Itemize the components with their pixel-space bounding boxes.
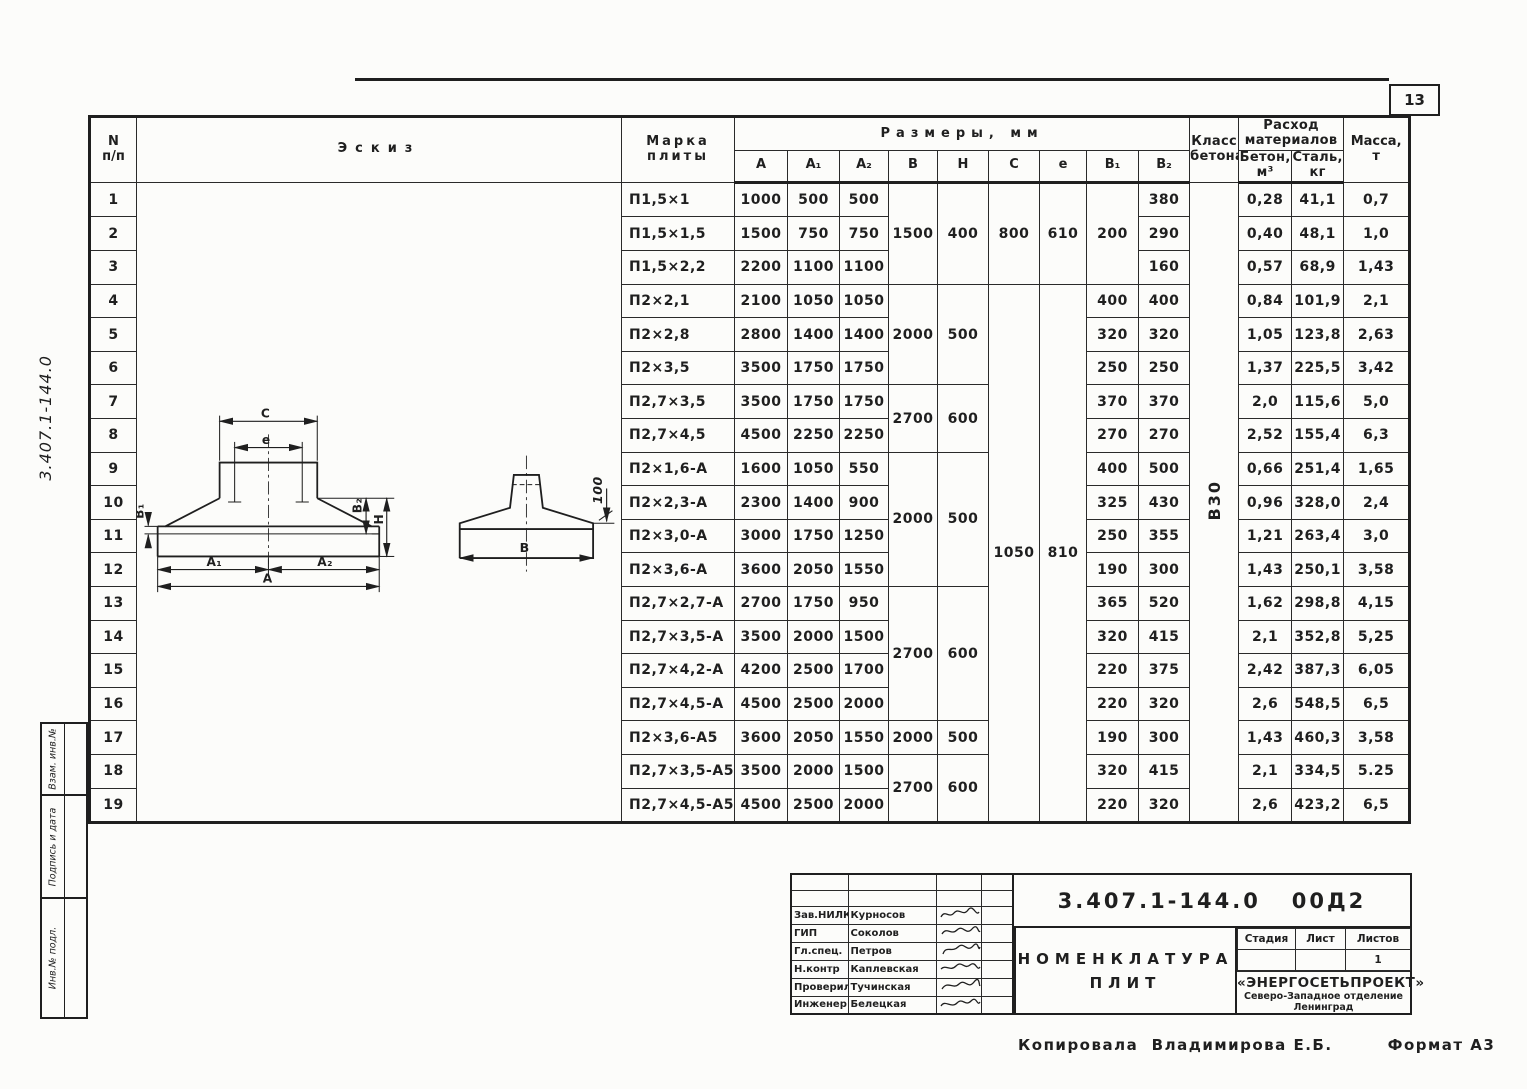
cell-a: 3500 <box>735 351 788 385</box>
stamp-inv: Инв.№ подл. <box>40 897 88 1019</box>
signature-scribble <box>939 925 981 938</box>
sig-date <box>981 942 1013 960</box>
stamp-blank-cell <box>65 899 86 1017</box>
row-num: 11 <box>90 519 137 553</box>
stage-value <box>1238 950 1296 971</box>
cell-a: 2100 <box>735 284 788 318</box>
copied-by: Копировала Владимирова Е.Б. <box>1018 1036 1333 1054</box>
signature-table: Зав.НИЛКЭ Курносов ГИП Соколов Гл.спец. … <box>790 873 1014 1015</box>
row-num: 12 <box>90 553 137 587</box>
sig-empty <box>981 874 1013 890</box>
col-header-mark: Марка плиты <box>622 117 735 183</box>
cell-a: 4500 <box>735 788 788 823</box>
cell-a1: 1400 <box>788 486 840 520</box>
cell-b1: 190 <box>1087 553 1139 587</box>
cell-a2: 750 <box>840 217 889 251</box>
cell-a1: 1750 <box>788 385 840 419</box>
cell-b2: 250 <box>1139 351 1190 385</box>
sketch-side-view: В 100 <box>452 402 621 602</box>
concrete-class: В30 <box>1205 480 1224 520</box>
sig-role: Н.контр <box>791 960 848 978</box>
row-num: 2 <box>90 217 137 251</box>
cell-steel: 225,5 <box>1292 351 1344 385</box>
cell-a1: 1050 <box>788 452 840 486</box>
cell-mass: 3,58 <box>1344 553 1410 587</box>
cell-h: 500 <box>938 721 989 755</box>
page-number-box: 13 <box>1389 84 1440 116</box>
cell-a: 4500 <box>735 687 788 721</box>
cell-a2: 2000 <box>840 788 889 823</box>
cell-steel: 101,9 <box>1292 284 1344 318</box>
cell-a: 3600 <box>735 721 788 755</box>
cell-a1: 1750 <box>788 587 840 621</box>
cell-steel: 68,9 <box>1292 251 1344 285</box>
sheets-total-value: 1 <box>1346 950 1411 971</box>
plate-mark: П2×2,8 <box>622 318 735 352</box>
cell-a1: 2000 <box>788 754 840 788</box>
col-header-a2: А₂ <box>840 151 889 183</box>
sheets-header: Листов <box>1346 929 1411 950</box>
cell-b1: 400 <box>1087 452 1139 486</box>
cell-e: 810 <box>1040 284 1087 823</box>
col-header-a: А <box>735 151 788 183</box>
col-header-c: С <box>989 151 1040 183</box>
cell-a2: 900 <box>840 486 889 520</box>
row-num: 5 <box>90 318 137 352</box>
col-header-num: N п/п <box>90 117 137 183</box>
cell-b1: 220 <box>1087 788 1139 823</box>
cell-a: 2800 <box>735 318 788 352</box>
signature-scribble <box>939 979 981 992</box>
cell-b2: 430 <box>1139 486 1190 520</box>
row-num: 7 <box>90 385 137 419</box>
sig-name: Тучинская <box>848 978 936 996</box>
cell-a2: 1550 <box>840 721 889 755</box>
sig-empty <box>936 874 981 890</box>
sig-autograph <box>936 978 981 996</box>
cell-mass: 6,5 <box>1344 687 1410 721</box>
cell-b1: 325 <box>1087 486 1139 520</box>
cell-beton: 0,40 <box>1239 217 1292 251</box>
cell-a1: 2500 <box>788 687 840 721</box>
margin-doc-number: 3.407.1-144.0 <box>36 355 60 525</box>
cell-a1: 1400 <box>788 318 840 352</box>
plate-mark: П1,5×1 <box>622 182 735 217</box>
row-num: 8 <box>90 419 137 453</box>
cell-steel: 41,1 <box>1292 182 1344 217</box>
cell-b: 2000 <box>889 452 938 586</box>
sig-autograph <box>936 924 981 942</box>
sig-empty <box>848 874 936 890</box>
cell-b1: 250 <box>1087 351 1139 385</box>
organization-branch: Северо-Западное отделение <box>1237 991 1410 1002</box>
stamp-podpis: Подпись и дата <box>40 794 88 897</box>
col-header-materials: Расход материалов <box>1239 117 1344 151</box>
col-header-b: В <box>889 151 938 183</box>
row-num: 6 <box>90 351 137 385</box>
cell-a2: 1500 <box>840 620 889 654</box>
col-header-steel: Сталь, кг <box>1292 151 1344 183</box>
cell-beton: 0,96 <box>1239 486 1292 520</box>
cell-mass: 5,0 <box>1344 385 1410 419</box>
plate-mark: П2,7×4,5 <box>622 419 735 453</box>
col-header-sketch: Эскиз <box>137 117 622 183</box>
plate-mark: П2×3,0-А <box>622 519 735 553</box>
cell-b2: 520 <box>1139 587 1190 621</box>
cell-h: 600 <box>938 385 989 452</box>
sketch-front-view: С е В₁ <box>137 402 400 602</box>
cell-b1: 320 <box>1087 754 1139 788</box>
cell-c: 800 <box>989 182 1040 284</box>
sketch-cell: С е В₁ <box>137 182 622 822</box>
cell-a1: 750 <box>788 217 840 251</box>
organization: «ЭНЕРГОСЕТЬПРОЕКТ» Северо-Западное отдел… <box>1237 971 1410 1013</box>
concrete-class-cell: В30 <box>1190 182 1239 822</box>
sig-autograph <box>936 960 981 978</box>
dim-label-b1: В₁ <box>137 503 147 519</box>
sig-name: Соколов <box>848 924 936 942</box>
cell-a: 1500 <box>735 217 788 251</box>
cell-mass: 0,7 <box>1344 182 1410 217</box>
cell-steel: 251,4 <box>1292 452 1344 486</box>
cell-c: 1050 <box>989 284 1040 823</box>
cell-b2: 355 <box>1139 519 1190 553</box>
sig-empty <box>848 890 936 906</box>
col-header-mass: Масса, т <box>1344 117 1410 183</box>
plate-mark: П2×1,6-А <box>622 452 735 486</box>
cell-a1: 2000 <box>788 620 840 654</box>
cell-beton: 2,1 <box>1239 620 1292 654</box>
cell-a2: 950 <box>840 587 889 621</box>
row-num: 9 <box>90 452 137 486</box>
sig-name: Курносов <box>848 906 936 924</box>
plate-mark: П2,7×3,5-А5 <box>622 754 735 788</box>
cell-beton: 0,84 <box>1239 284 1292 318</box>
cell-a2: 1050 <box>840 284 889 318</box>
cell-h: 400 <box>938 182 989 284</box>
signature-scribble <box>939 907 981 920</box>
plate-mark: П1,5×1,5 <box>622 217 735 251</box>
row-num: 4 <box>90 284 137 318</box>
stage-table: Стадия Лист Листов 1 <box>1237 928 1411 971</box>
margin-stamps: Взам. инв.№ Подпись и дата Инв.№ подл. <box>40 722 88 1019</box>
cell-mass: 5.25 <box>1344 754 1410 788</box>
dim-label-a1: А₁ <box>206 555 222 569</box>
cell-mass: 5,25 <box>1344 620 1410 654</box>
sig-name: Петров <box>848 942 936 960</box>
cell-a1: 1750 <box>788 519 840 553</box>
cell-a: 2300 <box>735 486 788 520</box>
drawing-title-line2: плит <box>1090 974 1162 992</box>
cell-steel: 387,3 <box>1292 654 1344 688</box>
row-num: 13 <box>90 587 137 621</box>
title-block: Зав.НИЛКЭ Курносов ГИП Соколов Гл.спец. … <box>790 873 1410 1015</box>
cell-b2: 300 <box>1139 553 1190 587</box>
cell-h: 500 <box>938 452 989 586</box>
cell-a2: 1400 <box>840 318 889 352</box>
cell-b2: 270 <box>1139 419 1190 453</box>
cell-h: 600 <box>938 587 989 721</box>
cell-a2: 1750 <box>840 351 889 385</box>
col-header-sizes: Размеры, мм <box>735 117 1190 151</box>
cell-a2: 1500 <box>840 754 889 788</box>
cell-b1: 365 <box>1087 587 1139 621</box>
cell-e: 610 <box>1040 182 1087 284</box>
top-frame-line <box>355 78 1389 81</box>
stamp-blank-cell <box>65 724 86 794</box>
cell-a2: 500 <box>840 182 889 217</box>
cell-mass: 2,4 <box>1344 486 1410 520</box>
cell-b2: 320 <box>1139 788 1190 823</box>
dim-label-a: А <box>263 572 273 586</box>
stage-header: Стадия <box>1238 929 1296 950</box>
cell-steel: 352,8 <box>1292 620 1344 654</box>
dim-label-100: 100 <box>590 476 605 504</box>
signature-scribble <box>939 961 981 974</box>
drawing-sheet: 13 3.407.1-144.0 Взам. инв.№ Подпись и д… <box>0 0 1527 1089</box>
plate-mark: П2,7×2,7-А <box>622 587 735 621</box>
cell-b: 2000 <box>889 284 938 385</box>
sig-date <box>981 978 1013 996</box>
cell-b2: 375 <box>1139 654 1190 688</box>
sig-date <box>981 996 1013 1014</box>
col-header-h: Н <box>938 151 989 183</box>
col-header-b2: В₂ <box>1139 151 1190 183</box>
cell-beton: 1,43 <box>1239 721 1292 755</box>
cell-b1: 270 <box>1087 419 1139 453</box>
cell-a2: 1750 <box>840 385 889 419</box>
cell-a2: 550 <box>840 452 889 486</box>
sig-autograph <box>936 906 981 924</box>
plate-mark: П2×3,6-А5 <box>622 721 735 755</box>
col-header-e: е <box>1040 151 1087 183</box>
sig-role: Зав.НИЛКЭ <box>791 906 848 924</box>
plate-mark: П2,7×4,5-А <box>622 687 735 721</box>
cell-b2: 415 <box>1139 754 1190 788</box>
cell-b2: 320 <box>1139 687 1190 721</box>
dim-label-c: С <box>261 407 270 421</box>
cell-a1: 2050 <box>788 553 840 587</box>
row-num: 17 <box>90 721 137 755</box>
plate-mark: П1,5×2,2 <box>622 251 735 285</box>
cell-steel: 115,6 <box>1292 385 1344 419</box>
dim-label-a2: А₂ <box>317 555 333 569</box>
cell-steel: 460,3 <box>1292 721 1344 755</box>
cell-b1: 370 <box>1087 385 1139 419</box>
cell-b1: 200 <box>1087 182 1139 284</box>
cell-b1: 220 <box>1087 687 1139 721</box>
stamp-label-cell: Инв.№ подл. <box>42 899 65 1017</box>
cell-steel: 328,0 <box>1292 486 1344 520</box>
cell-beton: 2,0 <box>1239 385 1292 419</box>
sig-empty <box>981 890 1013 906</box>
cell-beton: 0,28 <box>1239 182 1292 217</box>
dim-label-h: Н <box>372 514 386 525</box>
page-number: 13 <box>1404 91 1425 109</box>
stage-block: Стадия Лист Листов 1 «ЭНЕРГОСЕТЬПРОЕКТ» … <box>1237 928 1412 1015</box>
cell-b2: 300 <box>1139 721 1190 755</box>
cell-b1: 190 <box>1087 721 1139 755</box>
format-label: Формат А3 <box>1388 1036 1496 1054</box>
drawing-title: Номенклатура плит <box>1014 928 1237 1015</box>
col-header-a1: А₁ <box>788 151 840 183</box>
cell-a1: 500 <box>788 182 840 217</box>
cell-b2: 400 <box>1139 284 1190 318</box>
cell-b1: 400 <box>1087 284 1139 318</box>
cell-a1: 1750 <box>788 351 840 385</box>
stamp-vzam: Взам. инв.№ <box>40 722 88 794</box>
sig-date <box>981 924 1013 942</box>
row-num: 10 <box>90 486 137 520</box>
sig-empty <box>936 890 981 906</box>
sig-date <box>981 960 1013 978</box>
cell-b2: 415 <box>1139 620 1190 654</box>
cell-a1: 2500 <box>788 654 840 688</box>
cell-mass: 4,15 <box>1344 587 1410 621</box>
cell-steel: 263,4 <box>1292 519 1344 553</box>
cell-beton: 0,57 <box>1239 251 1292 285</box>
row-num: 1 <box>90 182 137 217</box>
sig-name: Каплевская <box>848 960 936 978</box>
cell-steel: 123,8 <box>1292 318 1344 352</box>
col-header-beton: Бетон, м³ <box>1239 151 1292 183</box>
cell-a: 2700 <box>735 587 788 621</box>
cell-b2: 380 <box>1139 182 1190 217</box>
cell-beton: 1,43 <box>1239 553 1292 587</box>
cell-a: 3500 <box>735 754 788 788</box>
cell-a: 4500 <box>735 419 788 453</box>
cell-b: 2700 <box>889 385 938 452</box>
row-num: 3 <box>90 251 137 285</box>
cell-a1: 1050 <box>788 284 840 318</box>
sheet-header: Лист <box>1296 929 1346 950</box>
sig-autograph <box>936 942 981 960</box>
cell-a1: 2250 <box>788 419 840 453</box>
row-num: 18 <box>90 754 137 788</box>
cell-b: 2700 <box>889 587 938 721</box>
cell-b1: 320 <box>1087 318 1139 352</box>
nomenclature-table: N п/п Эскиз Марка плиты Размеры, мм Клас… <box>88 115 1411 824</box>
sig-role: Проверил <box>791 978 848 996</box>
cell-a: 1600 <box>735 452 788 486</box>
cell-b1: 220 <box>1087 654 1139 688</box>
document-number: 3.407.1-144.0 00Д2 <box>1014 873 1412 928</box>
sheet-value <box>1296 950 1346 971</box>
cell-mass: 3,0 <box>1344 519 1410 553</box>
cell-mass: 6,05 <box>1344 654 1410 688</box>
cell-a1: 2050 <box>788 721 840 755</box>
cell-mass: 2,63 <box>1344 318 1410 352</box>
signature-scribble <box>939 997 981 1010</box>
col-header-class: Класс бетона <box>1190 117 1239 183</box>
cell-beton: 2,52 <box>1239 419 1292 453</box>
title-block-right: 3.407.1-144.0 00Д2 Номенклатура плит Ста… <box>1014 873 1412 1015</box>
cell-a: 3000 <box>735 519 788 553</box>
cell-b1: 320 <box>1087 620 1139 654</box>
sig-date <box>981 906 1013 924</box>
sig-empty <box>791 890 848 906</box>
cell-h: 600 <box>938 754 989 822</box>
cell-steel: 423,2 <box>1292 788 1344 823</box>
cell-beton: 1,21 <box>1239 519 1292 553</box>
cell-b2: 290 <box>1139 217 1190 251</box>
cell-a2: 1250 <box>840 519 889 553</box>
cell-a1: 1100 <box>788 251 840 285</box>
cell-beton: 1,05 <box>1239 318 1292 352</box>
cell-a: 3500 <box>735 385 788 419</box>
cell-beton: 1,37 <box>1239 351 1292 385</box>
cell-beton: 2,1 <box>1239 754 1292 788</box>
sketch-drawings: С е В₁ <box>137 402 621 602</box>
cell-mass: 1,0 <box>1344 217 1410 251</box>
signature-scribble <box>939 943 981 956</box>
row-num: 16 <box>90 687 137 721</box>
cell-a: 4200 <box>735 654 788 688</box>
stamp-label-cell: Взам. инв.№ <box>42 724 65 794</box>
dim-label-b: В <box>520 540 530 555</box>
plate-mark: П2×3,5 <box>622 351 735 385</box>
cell-a2: 1100 <box>840 251 889 285</box>
cell-a: 1000 <box>735 182 788 217</box>
sig-autograph <box>936 996 981 1014</box>
plate-mark: П2,7×3,5 <box>622 385 735 419</box>
cell-b2: 320 <box>1139 318 1190 352</box>
col-header-b1: В₁ <box>1087 151 1139 183</box>
copied-line: Копировала Владимирова Е.Б. Формат А3 <box>1018 1036 1495 1054</box>
sig-role: Инженер <box>791 996 848 1014</box>
plate-mark: П2,7×4,5-А5 <box>622 788 735 823</box>
plate-mark: П2×2,3-А <box>622 486 735 520</box>
cell-b2: 500 <box>1139 452 1190 486</box>
plate-mark: П2×3,6-А <box>622 553 735 587</box>
cell-beton: 0,66 <box>1239 452 1292 486</box>
title-block-bottom: Номенклатура плит Стадия Лист Листов <box>1014 928 1412 1015</box>
sig-role: ГИП <box>791 924 848 942</box>
cell-b2: 370 <box>1139 385 1190 419</box>
cell-h: 500 <box>938 284 989 385</box>
cell-a2: 1550 <box>840 553 889 587</box>
cell-a: 2200 <box>735 251 788 285</box>
cell-beton: 1,62 <box>1239 587 1292 621</box>
cell-steel: 48,1 <box>1292 217 1344 251</box>
row-num: 19 <box>90 788 137 823</box>
stamp-blank-cell <box>65 796 86 897</box>
cell-beton: 2,6 <box>1239 788 1292 823</box>
drawing-title-line1: Номенклатура <box>1018 950 1234 968</box>
dim-label-e: е <box>262 433 271 447</box>
plate-mark: П2×2,1 <box>622 284 735 318</box>
cell-mass: 1,43 <box>1344 251 1410 285</box>
stamp-label-cell: Подпись и дата <box>42 796 65 897</box>
cell-steel: 548,5 <box>1292 687 1344 721</box>
row-num: 14 <box>90 620 137 654</box>
organization-name: «ЭНЕРГОСЕТЬПРОЕКТ» <box>1237 975 1410 991</box>
cell-b: 1500 <box>889 182 938 284</box>
dim-label-b2: В₂ <box>350 498 364 514</box>
row-num: 15 <box>90 654 137 688</box>
cell-mass: 3,42 <box>1344 351 1410 385</box>
cell-steel: 250,1 <box>1292 553 1344 587</box>
plate-mark: П2,7×4,2-А <box>622 654 735 688</box>
sig-name: Белецкая <box>848 996 936 1014</box>
cell-b: 2000 <box>889 721 938 755</box>
cell-b2: 160 <box>1139 251 1190 285</box>
cell-a2: 1700 <box>840 654 889 688</box>
cell-beton: 2,42 <box>1239 654 1292 688</box>
cell-a2: 2000 <box>840 687 889 721</box>
cell-a1: 2500 <box>788 788 840 823</box>
cell-steel: 155,4 <box>1292 419 1344 453</box>
